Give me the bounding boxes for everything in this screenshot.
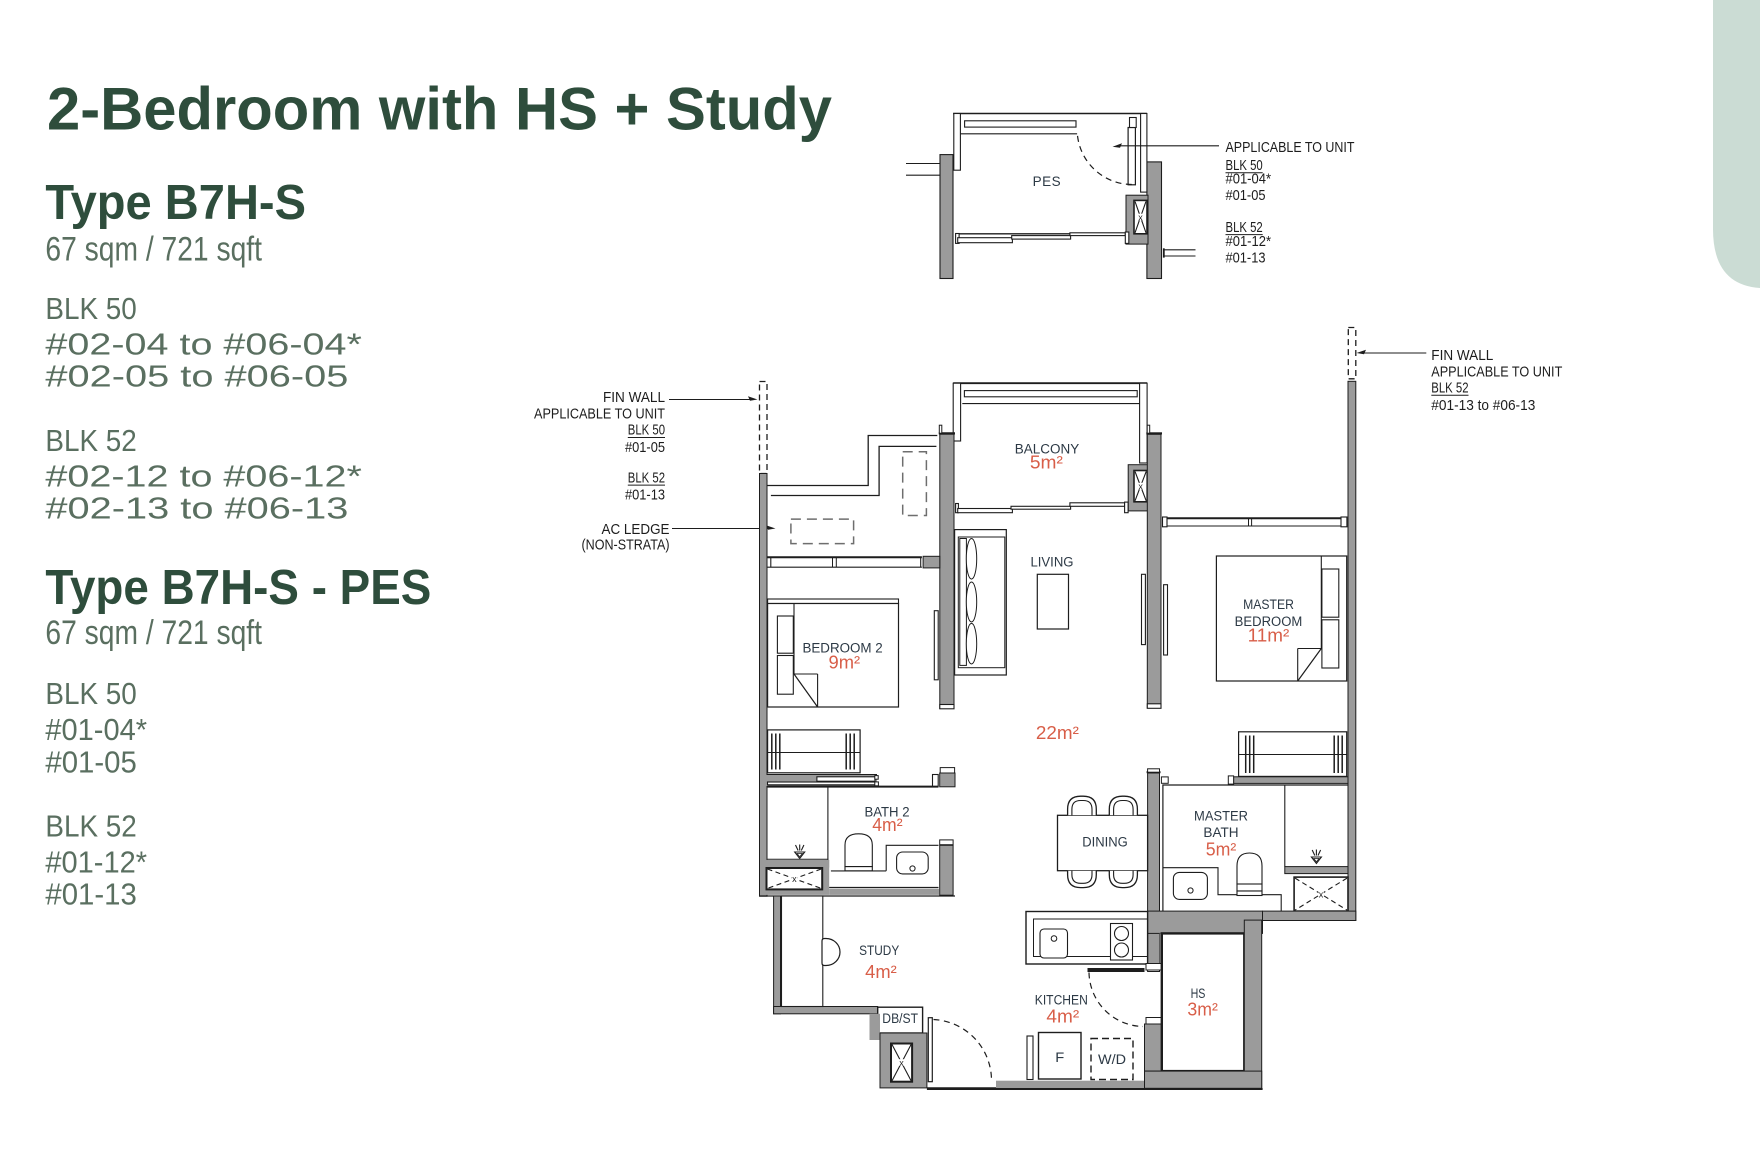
svg-text:x: x (899, 1058, 904, 1068)
svg-text:APPLICABLE TO UNIT: APPLICABLE TO UNIT (1431, 364, 1562, 380)
svg-text:F: F (1055, 1050, 1064, 1065)
svg-text:BATH: BATH (1203, 825, 1238, 840)
svg-text:#01-05: #01-05 (45, 745, 136, 779)
svg-text:APPLICABLE TO UNIT: APPLICABLE TO UNIT (1226, 140, 1355, 156)
svg-text:APPLICABLE TO UNIT: APPLICABLE TO UNIT (534, 406, 665, 422)
svg-text:#01-12*: #01-12* (45, 846, 147, 880)
svg-text:Type B7H-S: Type B7H-S (45, 175, 306, 230)
svg-text:W/D: W/D (1098, 1052, 1126, 1067)
svg-text:#02-13 to #06-13: #02-13 to #06-13 (45, 492, 348, 526)
svg-text:x: x (1319, 889, 1324, 899)
svg-text:22m²: 22m² (1036, 723, 1079, 743)
svg-text:x: x (1138, 481, 1143, 491)
svg-text:BLK 50: BLK 50 (628, 423, 665, 439)
svg-text:#01-04*: #01-04* (45, 713, 147, 747)
svg-text:PES: PES (1033, 174, 1062, 189)
svg-text:#02-05 to #06-05: #02-05 to #06-05 (45, 360, 348, 394)
svg-text:AC LEDGE: AC LEDGE (602, 522, 670, 538)
svg-text:STUDY: STUDY (859, 943, 899, 958)
svg-text:4m²: 4m² (872, 815, 902, 835)
svg-text:FIN WALL: FIN WALL (1431, 348, 1493, 364)
svg-text:5m²: 5m² (1206, 840, 1237, 860)
svg-text:#01-13: #01-13 (45, 877, 136, 911)
svg-text:#01-13 to #06-13: #01-13 to #06-13 (1431, 398, 1535, 414)
svg-text:4m²: 4m² (1046, 1007, 1079, 1027)
svg-text:67 sqm / 721 sqft: 67 sqm / 721 sqft (45, 614, 262, 652)
svg-text:MASTER: MASTER (1243, 597, 1294, 612)
svg-text:MASTER: MASTER (1194, 809, 1248, 824)
svg-text:BLK 52: BLK 52 (1431, 381, 1468, 397)
svg-text:BLK 52: BLK 52 (45, 810, 136, 844)
svg-text:2-Bedroom with HS + Study: 2-Bedroom with HS + Study (47, 76, 833, 143)
svg-text:(NON-STRATA): (NON-STRATA) (582, 538, 670, 554)
svg-text:FIN WALL: FIN WALL (603, 390, 665, 406)
svg-text:BLK 50: BLK 50 (45, 292, 136, 326)
svg-text:4m²: 4m² (865, 962, 897, 982)
svg-text:#01-13: #01-13 (625, 488, 665, 504)
svg-text:Type B7H-S - PES: Type B7H-S - PES (45, 560, 431, 615)
svg-text:11m²: 11m² (1248, 626, 1290, 646)
svg-text:#01-05: #01-05 (625, 440, 665, 456)
svg-text:#01-13: #01-13 (1226, 250, 1266, 266)
svg-text:DB/ST: DB/ST (882, 1011, 918, 1026)
svg-text:#02-12 to #06-12*: #02-12 to #06-12* (45, 460, 362, 494)
svg-text:BLK 52: BLK 52 (628, 470, 665, 486)
svg-text:x: x (792, 874, 797, 884)
svg-text:DINING: DINING (1082, 835, 1128, 850)
svg-text:#01-04*: #01-04* (1226, 172, 1272, 188)
svg-text:#02-04 to #06-04*: #02-04 to #06-04* (45, 327, 362, 361)
svg-text:67 sqm / 721 sqft: 67 sqm / 721 sqft (45, 231, 262, 269)
svg-text:BLK 52: BLK 52 (45, 424, 136, 458)
svg-text:KITCHEN: KITCHEN (1035, 993, 1088, 1008)
svg-text:x: x (1138, 212, 1143, 222)
svg-text:9m²: 9m² (829, 653, 861, 673)
svg-text:#01-05: #01-05 (1226, 188, 1266, 204)
svg-text:LIVING: LIVING (1031, 554, 1074, 569)
svg-text:3m²: 3m² (1187, 1000, 1218, 1020)
svg-text:BLK 50: BLK 50 (45, 677, 136, 711)
svg-text:5m²: 5m² (1030, 453, 1063, 473)
svg-text:#01-12*: #01-12* (1226, 234, 1272, 250)
